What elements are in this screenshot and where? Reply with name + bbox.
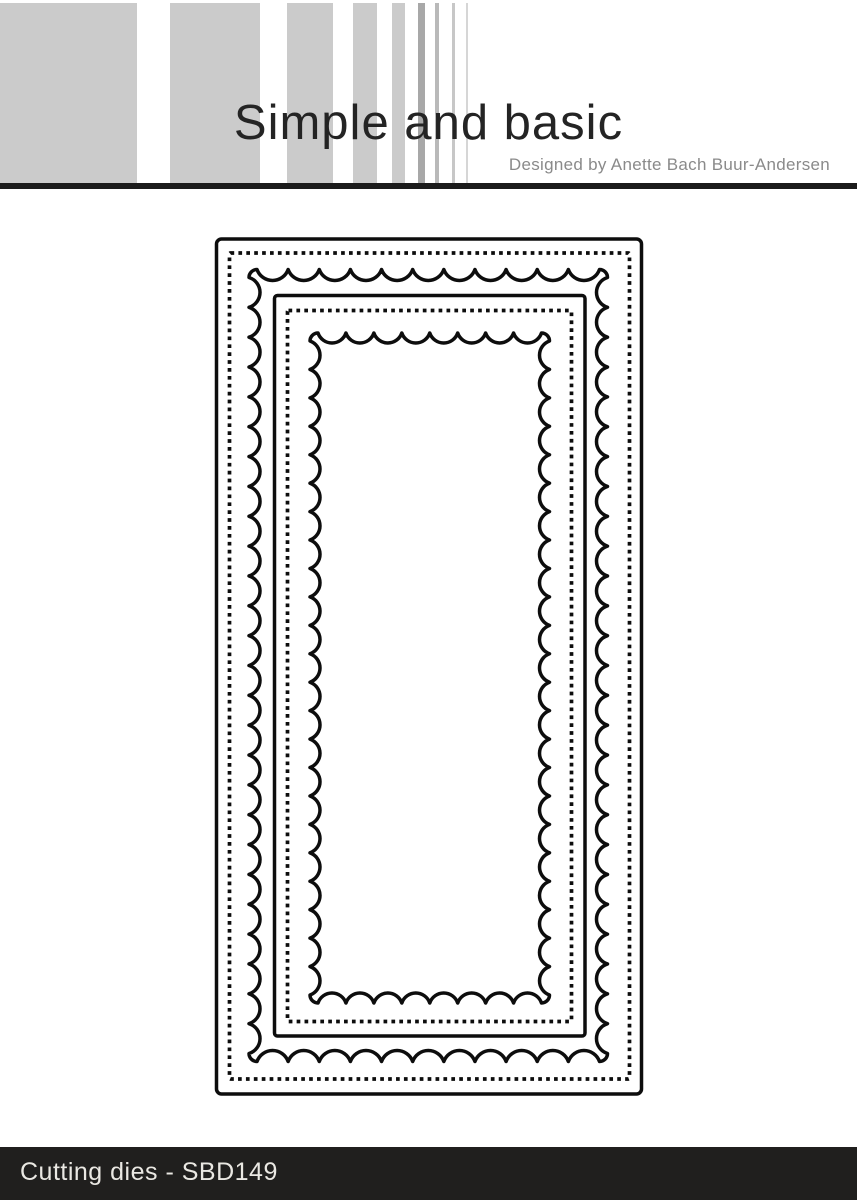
stripe: [353, 3, 377, 183]
product-code-label: Cutting dies - SBD149: [20, 1158, 278, 1186]
stripe: [418, 3, 425, 183]
header-banner: Simple and basic Designed by Anette Bach…: [0, 0, 857, 189]
designer-credit: Designed by Anette Bach Buur-Andersen: [509, 156, 830, 173]
stripe: [392, 3, 405, 183]
cutting-die-diagram: [214, 236, 644, 1097]
stripe: [170, 3, 260, 183]
outer-cut-frame: [217, 239, 642, 1094]
footer-bar: Cutting dies - SBD149: [0, 1147, 857, 1200]
outer-stitch-line: [230, 253, 630, 1079]
stripe: [452, 3, 455, 183]
stripe: [0, 3, 137, 183]
brand-logo-text: Simple and basic: [0, 99, 857, 148]
header-divider-bar: [0, 183, 857, 189]
page: { "header": { "brand": "Simple and basic…: [0, 0, 857, 1200]
stripe: [287, 3, 333, 183]
inner-stitch-line: [288, 311, 572, 1022]
outer-scallop-frame: [249, 270, 608, 1062]
stripe: [466, 3, 468, 183]
stripe: [435, 3, 439, 183]
inner-scallop-frame: [310, 333, 550, 1003]
